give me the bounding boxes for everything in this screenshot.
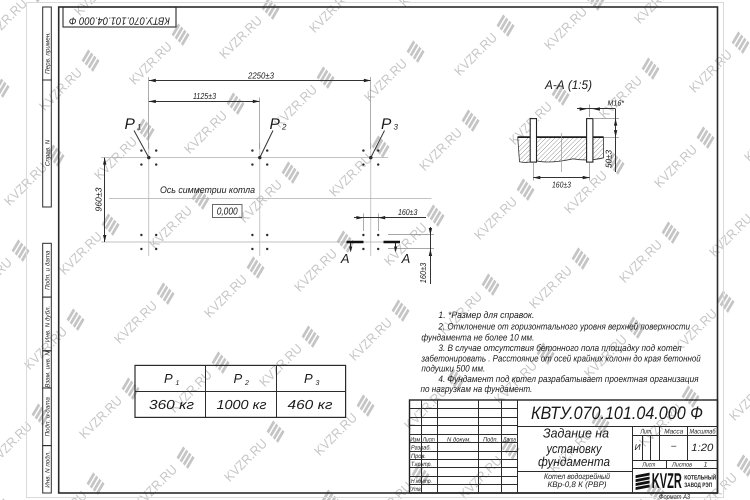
- svg-text:Разраб.: Разраб.: [411, 445, 431, 452]
- svg-text:ЗАВОД РЭП: ЗАВОД РЭП: [684, 482, 712, 489]
- svg-text:960±3: 960±3: [94, 187, 104, 211]
- svg-text:Перв. примен.: Перв. примен.: [44, 32, 51, 74]
- svg-text:Лист: Лист: [422, 436, 435, 443]
- svg-text:1:20: 1:20: [691, 442, 713, 454]
- svg-text:P: P: [304, 371, 313, 386]
- svg-text:Инв. N подл.: Инв. N подл.: [44, 451, 51, 488]
- svg-text:P: P: [164, 371, 173, 386]
- svg-text:0,000: 0,000: [217, 207, 238, 218]
- svg-text:КВр-0,8 К (РВР): КВр-0,8 К (РВР): [548, 480, 607, 489]
- svg-text:И: И: [635, 442, 642, 452]
- svg-text:N докум.: N докум.: [447, 436, 471, 443]
- svg-text:Взам. инв. N: Взам. инв. N: [44, 351, 51, 388]
- svg-text:4. Фундамент под котел раз: 4. Фундамент под котел разрабатывает про…: [438, 374, 698, 384]
- svg-text:фундамента не более 10 мм.: фундамента не более 10 мм.: [421, 333, 534, 343]
- svg-text:P: P: [381, 116, 392, 133]
- svg-text:Справ. N: Справ. N: [44, 139, 51, 166]
- svg-text:3. В случае отсутствия бет: 3. В случае отсутствия бетонного пола пл…: [438, 343, 682, 353]
- svg-text:2. Отклонение от горизонтал: 2. Отклонение от горизонтального уровня …: [438, 322, 690, 332]
- svg-text:Изм: Изм: [410, 436, 421, 443]
- svg-text:А-А (1:5): А-А (1:5): [544, 78, 592, 92]
- svg-text:забетонировать . Расстояние: забетонировать . Расстояние от осей край…: [421, 354, 701, 364]
- svg-text:Листов: Листов: [671, 461, 693, 468]
- svg-text:Масса: Масса: [664, 428, 683, 435]
- svg-text:P: P: [270, 116, 281, 133]
- svg-text:1000 кг: 1000 кг: [217, 397, 268, 412]
- svg-text:160±3: 160±3: [552, 180, 571, 190]
- svg-text:1. *Размер для справок.: 1. *Размер для справок.: [438, 310, 534, 320]
- svg-text:Задание на: Задание на: [543, 426, 609, 441]
- svg-text:3: 3: [316, 380, 320, 387]
- svg-text:подушки 500 мм.: подушки 500 мм.: [421, 364, 485, 374]
- svg-text:1: 1: [176, 380, 180, 387]
- svg-text:Т.контр.: Т.контр.: [411, 461, 432, 468]
- svg-text:А: А: [401, 251, 411, 266]
- svg-text:Ось симметрии котла: Ось симметрии котла: [160, 185, 255, 196]
- svg-text:М16*: М16*: [608, 99, 626, 108]
- svg-text:P: P: [234, 371, 243, 386]
- svg-text:Подп.: Подп.: [483, 436, 498, 443]
- svg-text:по нагрузкам на фундамент.: по нагрузкам на фундамент.: [421, 384, 533, 394]
- svg-text:фундамента: фундамента: [538, 454, 610, 469]
- svg-text:Подп. и дата: Подп. и дата: [44, 250, 51, 290]
- svg-text:160±3: 160±3: [418, 263, 428, 284]
- svg-text:460 кг: 460 кг: [288, 397, 334, 412]
- svg-text:Масштаб: Масштаб: [690, 428, 717, 435]
- svg-text:А: А: [340, 251, 350, 266]
- svg-text:3: 3: [394, 123, 399, 132]
- svg-text:KVZR: KVZR: [652, 469, 682, 493]
- svg-text:1: 1: [137, 123, 141, 132]
- svg-text:КОТЕЛЬНЫЙ: КОТЕЛЬНЫЙ: [684, 473, 716, 481]
- svg-text:Дата: Дата: [502, 436, 516, 443]
- svg-text:Лист: Лист: [642, 461, 656, 468]
- svg-text:2: 2: [281, 123, 287, 132]
- svg-text:КВТУ.070.101.04.000 Ф: КВТУ.070.101.04.000 Ф: [531, 403, 703, 423]
- svg-text:Лит.: Лит.: [640, 428, 653, 435]
- svg-text:Инв. N дубл.: Инв. N дубл.: [44, 306, 51, 342]
- svg-text:P: P: [125, 116, 136, 133]
- svg-text:Н.контр.: Н.контр.: [411, 478, 432, 485]
- svg-text:2: 2: [244, 380, 249, 387]
- svg-text:КВТУ.070.101.04.000 Ф: КВТУ.070.101.04.000 Ф: [69, 14, 170, 26]
- svg-text:–: –: [670, 441, 677, 451]
- svg-text:2250±3: 2250±3: [247, 70, 274, 80]
- svg-text:360 кг: 360 кг: [149, 397, 195, 412]
- svg-text:160±3: 160±3: [398, 207, 418, 217]
- svg-text:Формат А3: Формат А3: [659, 494, 690, 500]
- svg-text:50±3: 50±3: [603, 150, 613, 168]
- svg-text:1: 1: [704, 461, 708, 468]
- svg-text:Пров.: Пров.: [411, 453, 426, 460]
- svg-text:1125±3: 1125±3: [193, 91, 216, 101]
- svg-text:Утв.: Утв.: [410, 486, 422, 493]
- svg-text:Подп. и дата: Подп. и дата: [44, 397, 51, 437]
